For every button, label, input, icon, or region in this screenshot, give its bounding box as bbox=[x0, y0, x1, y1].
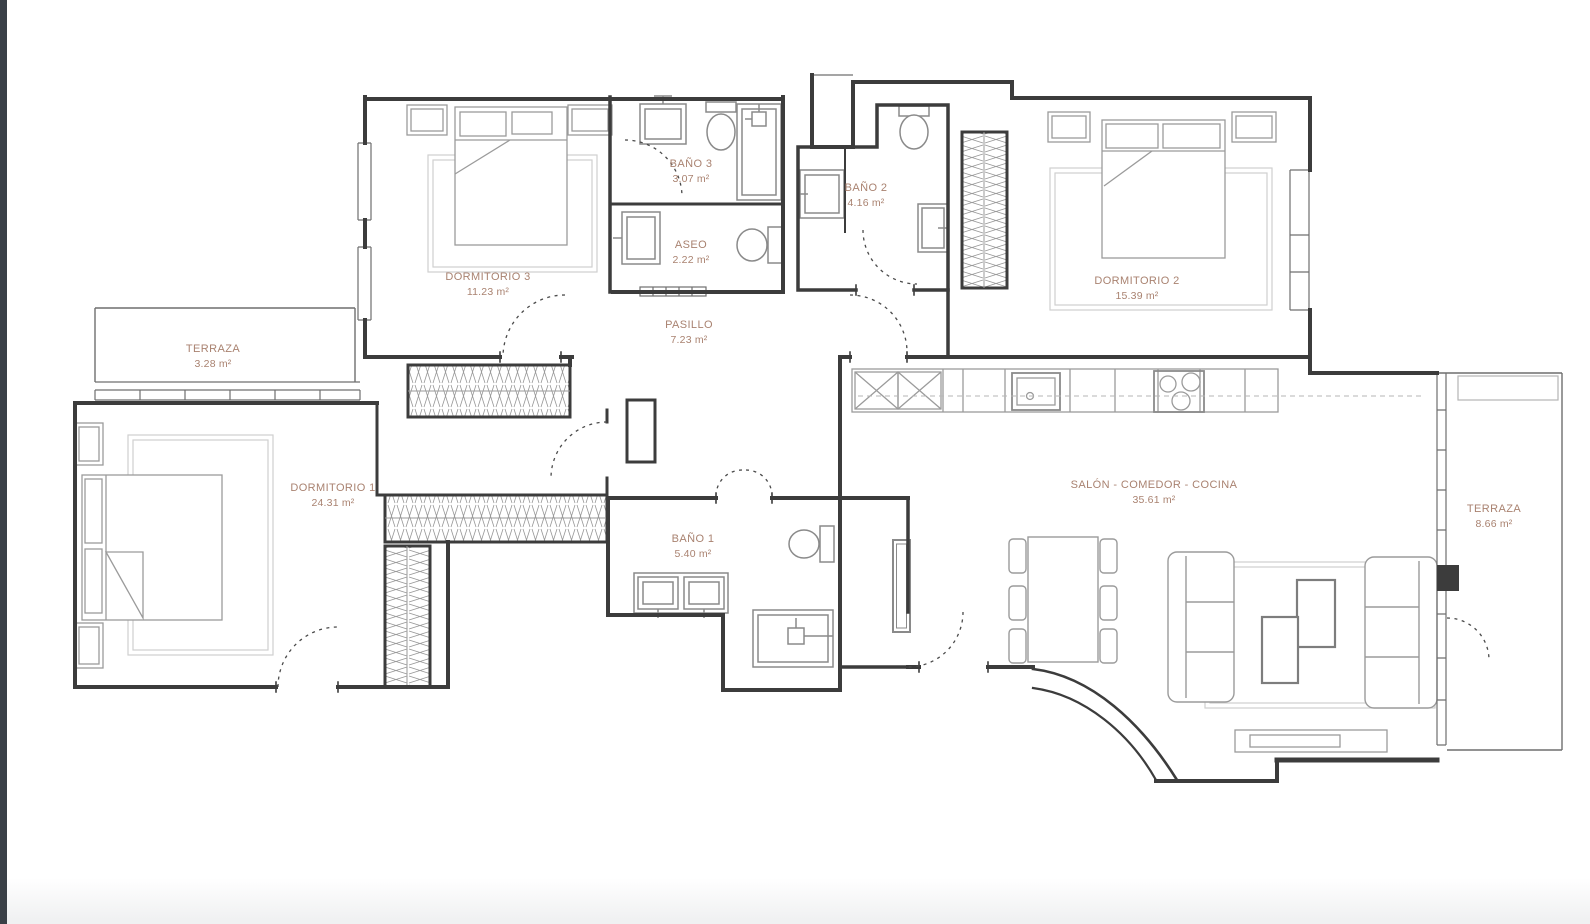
room-label-bano-2: BAÑO 2 4.16 m² bbox=[736, 181, 996, 211]
room-name: ASEO bbox=[561, 238, 821, 253]
room-name: TERRAZA bbox=[83, 342, 343, 357]
room-label-terraza-izquierda: TERRAZA 3.28 m² bbox=[83, 342, 343, 372]
room-name: SALÓN - COMEDOR - COCINA bbox=[1024, 478, 1284, 493]
room-area: 24.31 m² bbox=[203, 496, 463, 511]
room-area: 4.16 m² bbox=[736, 196, 996, 211]
room-name: DORMITORIO 1 bbox=[203, 481, 463, 496]
room-name: BAÑO 1 bbox=[563, 532, 823, 547]
room-name: PASILLO bbox=[559, 318, 819, 333]
room-area: 35.61 m² bbox=[1024, 493, 1284, 508]
tv-unit-icon bbox=[1235, 730, 1387, 752]
room-label-terraza-derecha: TERRAZA 8.66 m² bbox=[1364, 502, 1590, 532]
room-area: 5.40 m² bbox=[563, 547, 823, 562]
room-area: 15.39 m² bbox=[1007, 289, 1267, 304]
room-label-dormitorio-2: DORMITORIO 2 15.39 m² bbox=[1007, 274, 1267, 304]
room-area: 2.22 m² bbox=[561, 253, 821, 268]
room-name: BAÑO 2 bbox=[736, 181, 996, 196]
floorplan-page: DORMITORIO 3 11.23 m² BAÑO 3 3.07 m² ASE… bbox=[0, 0, 1590, 924]
room-name: TERRAZA bbox=[1364, 502, 1590, 517]
bed-dormitorio-2-icon bbox=[1048, 112, 1276, 258]
floorplan-drawing bbox=[0, 0, 1590, 924]
page-bottom-fade bbox=[7, 878, 1590, 924]
room-area: 11.23 m² bbox=[358, 285, 618, 300]
room-area: 7.23 m² bbox=[559, 333, 819, 348]
dining-table-icon bbox=[1009, 537, 1117, 663]
room-label-salon: SALÓN - COMEDOR - COCINA 35.61 m² bbox=[1024, 478, 1284, 508]
room-label-aseo: ASEO 2.22 m² bbox=[561, 238, 821, 268]
room-label-dormitorio-3: DORMITORIO 3 11.23 m² bbox=[358, 270, 618, 300]
room-name: DORMITORIO 3 bbox=[358, 270, 618, 285]
room-name: DORMITORIO 2 bbox=[1007, 274, 1267, 289]
room-name: BAÑO 3 bbox=[561, 157, 821, 172]
room-area: 8.66 m² bbox=[1364, 517, 1590, 532]
room-label-pasillo: PASILLO 7.23 m² bbox=[559, 318, 819, 348]
left-edge-bar bbox=[0, 0, 7, 924]
kitchen-counter-icon bbox=[852, 369, 1425, 412]
bed-dormitorio-1-icon bbox=[75, 423, 222, 668]
coffee-table-icons bbox=[1262, 580, 1335, 683]
room-label-bano-1: BAÑO 1 5.40 m² bbox=[563, 532, 823, 562]
room-label-dormitorio-1: DORMITORIO 1 24.31 m² bbox=[203, 481, 463, 511]
room-area: 3.28 m² bbox=[83, 357, 343, 372]
